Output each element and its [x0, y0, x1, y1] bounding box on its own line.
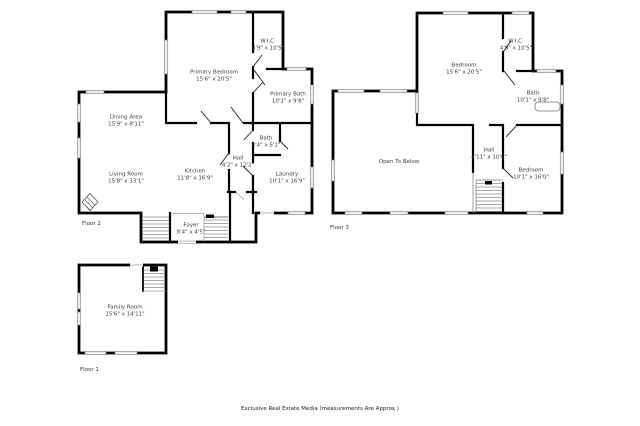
floorplan-drawing [0, 0, 640, 426]
room-label-dining-area: Dining Area 15'9" x 8'11" [108, 115, 144, 128]
room-dims-text: 4'9" x 10'5" [252, 45, 284, 52]
room-label-living-room: Living Room 15'8" x 13'1" [108, 172, 144, 185]
room-name-text: Open To Below [379, 159, 420, 166]
room-dims-text: 10'1" x 16'9" [269, 178, 305, 185]
room-label-bath-floor2: Bath 4'4" x 5'1" [252, 136, 281, 149]
room-dims-text: 15'9" x 8'11" [108, 121, 144, 128]
floor3-label: Floor 3 [330, 225, 349, 231]
room-name-text: Dining Area [108, 115, 144, 122]
room-label-family-room: Family Room 15'6" x 14'11" [105, 305, 144, 318]
room-label-bedroom-main: Bedroom 15'6" x 20'5" [446, 63, 482, 76]
room-name-text: Primary Bedroom [190, 70, 238, 77]
room-label-wic-floor3: W.I.C. 4'9" x 10'5" [500, 39, 532, 52]
room-name-text: Living Room [108, 172, 144, 179]
stair-landing-marker [206, 215, 214, 219]
room-label-primary-bedroom: Primary Bedroom 15'6" x 20'5" [190, 70, 238, 83]
floor1-label: Floor 1 [80, 367, 99, 373]
room-dims-text: 10'1" x 9'8" [270, 98, 306, 105]
room-label-laundry: Laundry 10'1" x 16'9" [269, 172, 305, 185]
room-name-text: Primary Bath [270, 92, 306, 99]
room-dims-text: 4'4" x 5'1" [252, 142, 281, 149]
room-label-hall-floor3: Hall 4'11" x 10'6" [471, 148, 507, 161]
room-dims-text: 15'6" x 14'11" [105, 311, 144, 318]
room-dims-text: 15'6" x 20'5" [446, 69, 482, 76]
room-dims-text: 11'8" x 16'9" [177, 175, 213, 182]
stair-landing-marker [150, 267, 158, 272]
floor2-staircase-right [204, 215, 228, 238]
room-label-wic-floor2: W.I.C. 4'9" x 10'5" [252, 39, 284, 52]
floor2-label: Floor 2 [82, 221, 101, 227]
fireplace-icon [82, 194, 98, 211]
room-dims-text: 4'2" x 12'2" [222, 162, 254, 169]
floorplan-page: Primary Bedroom 15'6" x 20'5" W.I.C. 4'9… [0, 0, 640, 426]
stair-landing-marker [485, 181, 492, 185]
room-dims-text: 10'1" x 9'8" [517, 97, 549, 104]
room-label-bedroom-2: Bedroom 10'1" x 16'0" [513, 168, 549, 181]
room-label-hall-floor2: Hall 4'2" x 12'2" [222, 156, 254, 169]
caption-text: Exclusive Real Estate Media (measurement… [0, 406, 640, 412]
room-label-primary-bath: Primary Bath 10'1" x 9'8" [270, 92, 306, 105]
room-label-open-to-below: Open To Below [379, 159, 420, 166]
room-dims-text: 8'4" x 4'5" [177, 229, 206, 236]
room-name-text: Family Room [105, 305, 144, 312]
floor2-staircase-left [142, 217, 169, 238]
room-dims-text: 15'8" x 13'1" [108, 178, 144, 185]
room-label-bath-floor3: Bath 10'1" x 9'8" [517, 91, 549, 104]
floor1-windows [77, 293, 137, 355]
room-dims-text: 4'11" x 10'6" [471, 154, 507, 161]
room-label-foyer: Foyer 8'4" x 4'5" [177, 223, 206, 236]
room-dims-text: 15'6" x 20'5" [190, 76, 238, 83]
floor3-staircase [473, 172, 502, 213]
room-dims-text: 4'9" x 10'5" [500, 45, 532, 52]
room-dims-text: 10'1" x 16'0" [513, 174, 549, 181]
floor1-staircase [130, 265, 166, 291]
room-label-kitchen: Kitchen 11'8" x 16'9" [177, 169, 213, 182]
